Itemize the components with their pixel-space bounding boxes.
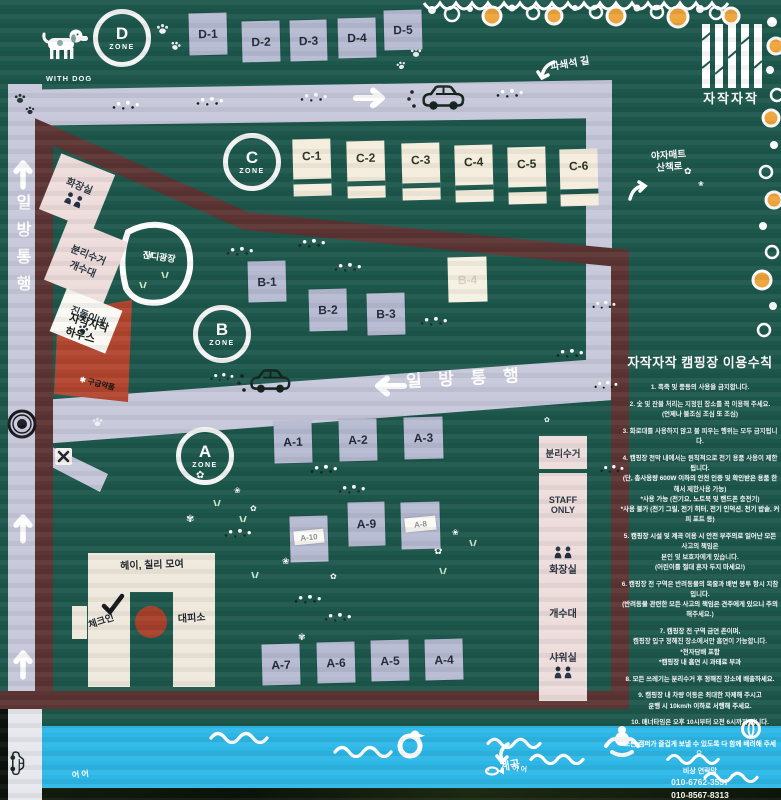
car-icon xyxy=(251,371,289,393)
rules-panel: 자작자작 캠핑장 이용수칙 1. 폭죽 및 풍등의 사용을 금지합니다. 2. … xyxy=(620,352,780,800)
zone-letter: C xyxy=(246,149,258,166)
campsite-d4: D-4 xyxy=(337,18,376,59)
campsite-a5: A-5 xyxy=(370,640,409,682)
rule-item: 2. 숯 및 잔불 처리는 지정된 장소를 꼭 이용해 주세요. (언제나 불조… xyxy=(620,400,780,421)
flower-doodle: ✾ xyxy=(298,632,306,643)
rules-closing: 모든 캠퍼가 즐겁게 보낼 수 있도록 다 함께 배려해 주세요. xyxy=(620,738,780,758)
campsite-a7: A-7 xyxy=(261,644,300,686)
campsite-c5: C-5 xyxy=(507,147,546,205)
zone-letter: D xyxy=(116,25,128,42)
flower-doodle: ✿ xyxy=(544,416,550,424)
shower-people-icon xyxy=(554,666,572,679)
campsite-c1: C-1 xyxy=(292,139,331,197)
mat-trail-arrow xyxy=(630,182,645,199)
campsite-c6: C-6 xyxy=(559,149,598,207)
rule-item: 3. 화로대를 사용하지 않고 불 피우는 행위는 모두 금지됩니다. xyxy=(620,427,780,448)
flower-doodle: ✾ xyxy=(186,514,194,525)
campsite-a8-patched: A-8 xyxy=(400,501,440,549)
campsite-a3: A-3 xyxy=(403,416,443,459)
campground-map: WITH DOG D ZONE D-1 D-2 D-3 D-4 D-5 자작자작… xyxy=(0,0,781,800)
flower-doodle: ✿ xyxy=(250,504,257,513)
campsite-a6: A-6 xyxy=(316,642,355,684)
building-annex xyxy=(72,606,87,639)
shower-label: 샤워실 xyxy=(549,649,577,664)
staff-facility-column: STAFF ONLY 화장실 개수대 샤워실 xyxy=(539,473,587,701)
rule-item: 10. 매너타임은 오후 10시부터 오전 6시까지 입니다. xyxy=(620,718,780,728)
contact-phone-2: 010-8567-8313 xyxy=(620,789,780,800)
flower-doodle: ❀ xyxy=(234,486,241,495)
campsite-b2: B-2 xyxy=(308,289,347,332)
campsite-d2: D-2 xyxy=(241,21,280,63)
campsite-d3: D-3 xyxy=(289,20,327,62)
rule-item: 4. 캠핑장 천막 내에서는 원칙적으로 전기 용품 사용이 제한됩니다. (단… xyxy=(620,454,780,526)
zone-letter: B xyxy=(216,321,228,338)
campsite-a2: A-2 xyxy=(338,419,377,462)
restroom-people-icon xyxy=(554,546,572,559)
rule-item: 7. 캠핑장 전 구역 금연 존이며, 캠핑장 입구 정해진 장소에서만 흡연이… xyxy=(620,627,780,668)
logo-wordmark: 자작자작 xyxy=(694,91,768,107)
zone-word: ZONE xyxy=(209,340,234,347)
mat-trail-label: 야자매트 산책로 xyxy=(635,148,702,176)
duck-text: 어 어 xyxy=(72,769,90,781)
campsite-a1: A-1 xyxy=(273,421,312,464)
flower-doodle: ❀ xyxy=(698,180,704,188)
campsite-d5: D-5 xyxy=(383,10,422,51)
duck-text: 어 어 xyxy=(512,765,528,775)
campsite-b4-faded: B-4 xyxy=(447,256,487,302)
rule-item: 9. 캠핑장 내 차량 이동은 최대한 자제해 주시고 운행 시 10km/h … xyxy=(620,691,780,712)
logo-birch-icon xyxy=(702,24,762,88)
shelter-label: 대피소 xyxy=(178,612,213,627)
flower-doodle: ❀ xyxy=(452,528,459,537)
toilet-right-label: 화장실 xyxy=(549,561,577,576)
campsite-d1: D-1 xyxy=(188,13,227,56)
zone-marker-d: D ZONE xyxy=(93,9,151,67)
no-entry-marker xyxy=(55,448,72,465)
rule-item: 6. 캠핑장 전 구역은 반려동물의 목줄과 배변 봉투 항시 지참입니다. (… xyxy=(620,580,780,621)
zone-letter: A xyxy=(199,443,211,460)
zone-word: ZONE xyxy=(109,44,134,51)
campsite-c3: C-3 xyxy=(401,143,440,201)
zone-marker-b: B ZONE xyxy=(193,305,251,363)
contact-label: 비상 연락망 xyxy=(620,766,780,776)
campsite-c4: C-4 xyxy=(454,145,493,203)
recycle-right-sign: 분리수거 xyxy=(539,436,587,469)
one-way-left-label: 일방통행 xyxy=(11,194,31,374)
with-dog-label: WITH DOG xyxy=(40,74,98,83)
contact-phone-1: 010-6762-3557 xyxy=(620,776,780,790)
zone-marker-c: C ZONE xyxy=(223,133,281,191)
campsite-b1: B-1 xyxy=(247,261,286,303)
zone-marker-a: A ZONE xyxy=(176,427,234,485)
flower-doodle: ✿ xyxy=(330,572,337,581)
rules-title: 자작자작 캠핑장 이용수칙 xyxy=(620,352,780,371)
garland-top xyxy=(424,3,739,27)
photo-edge xyxy=(0,700,8,800)
rule-item: 1. 폭죽 및 풍등의 사용을 금지합니다. xyxy=(620,383,780,393)
campsite-a10-patched: A-10 xyxy=(289,516,328,563)
sink-right-label: 개수대 xyxy=(549,605,577,620)
rule-item: 5. 캠핑장 시설 및 계곡 이용 시 안전 부주의로 일어난 모든 사고의 책… xyxy=(620,532,780,573)
flower-doodle: ❀ xyxy=(282,556,290,567)
campsite-c2: C-2 xyxy=(346,141,385,199)
campsite-a9: A-9 xyxy=(347,502,385,547)
round-stamp xyxy=(9,411,35,437)
zone-word: ZONE xyxy=(192,462,217,469)
staff-only-label: STAFF ONLY xyxy=(549,495,577,517)
rule-item: 8. 모든 쓰레기는 분리수거 후 정해진 장소에 배출하세요. xyxy=(620,675,780,685)
zone-word: ZONE xyxy=(239,168,264,175)
campsite-b3: B-3 xyxy=(366,293,405,336)
emergency-contact: 비상 연락망 010-6762-3557 010-8567-8313 xyxy=(620,766,780,800)
road-top xyxy=(8,80,612,126)
dog-icon xyxy=(44,30,88,60)
campsite-a4: A-4 xyxy=(424,639,463,681)
building-red-circle xyxy=(135,606,167,638)
